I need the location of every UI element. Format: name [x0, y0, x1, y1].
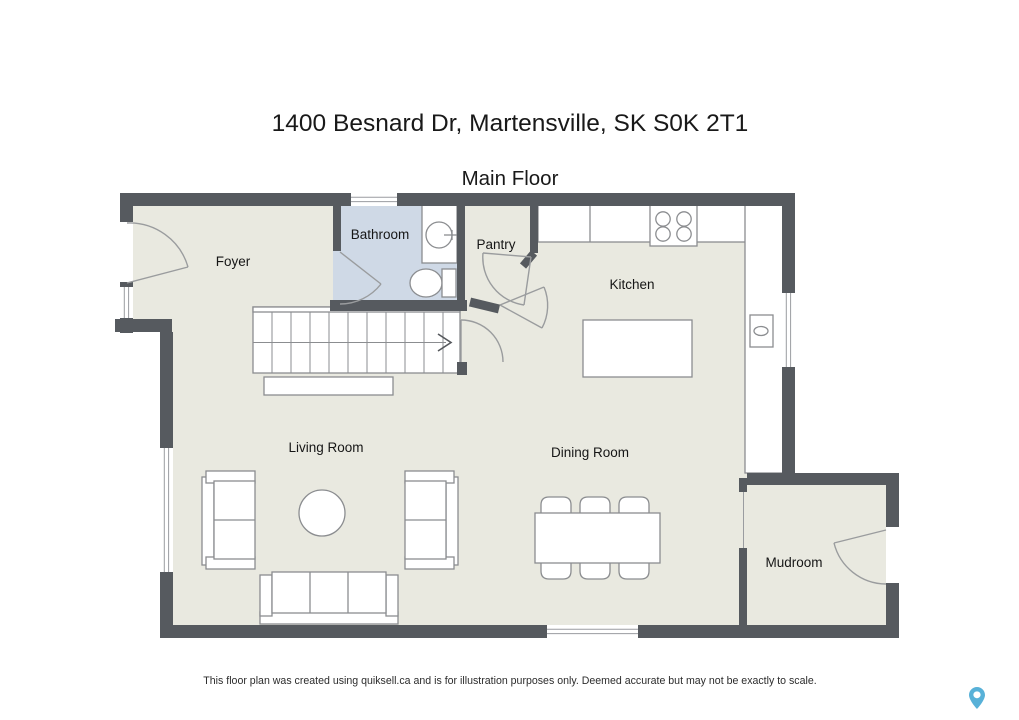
dining-set: [535, 497, 660, 579]
map-pin-icon: [969, 687, 985, 709]
kitchen-sink-icon: [750, 315, 773, 347]
room-label-living-room: Living Room: [288, 440, 363, 455]
bathroom-vanity: [422, 205, 458, 263]
room-label-bathroom: Bathroom: [351, 227, 410, 242]
window: [782, 293, 795, 367]
kitchen-island: [583, 320, 692, 377]
stove-icon: [650, 205, 697, 246]
window: [160, 448, 173, 572]
coffee-table: [299, 490, 345, 536]
floor-plan-page: 1400 Besnard Dr, Martensville, SK S0K 2T…: [0, 0, 1019, 720]
dining-table: [535, 513, 660, 563]
stair-landing: [264, 377, 393, 395]
page-title: 1400 Besnard Dr, Martensville, SK S0K 2T…: [272, 110, 749, 137]
room-label-mudroom: Mudroom: [765, 555, 822, 570]
toilet-icon: [410, 269, 456, 297]
sofa: [260, 572, 398, 624]
room-label-foyer: Foyer: [216, 254, 251, 269]
floor-plan-drawing: 1400 Besnard Dr, Martensville, SK S0K 2T…: [0, 0, 1019, 720]
room-label-dining-room: Dining Room: [551, 445, 629, 460]
floor-label: Main Floor: [462, 167, 559, 190]
window: [351, 193, 397, 206]
loveseat-right: [405, 471, 458, 569]
window: [120, 287, 133, 318]
room-label-pantry: Pantry: [476, 237, 515, 252]
window: [547, 625, 638, 638]
room-label-kitchen: Kitchen: [609, 277, 654, 292]
disclaimer: This floor plan was created using quikse…: [203, 675, 816, 687]
loveseat-left: [202, 471, 255, 569]
